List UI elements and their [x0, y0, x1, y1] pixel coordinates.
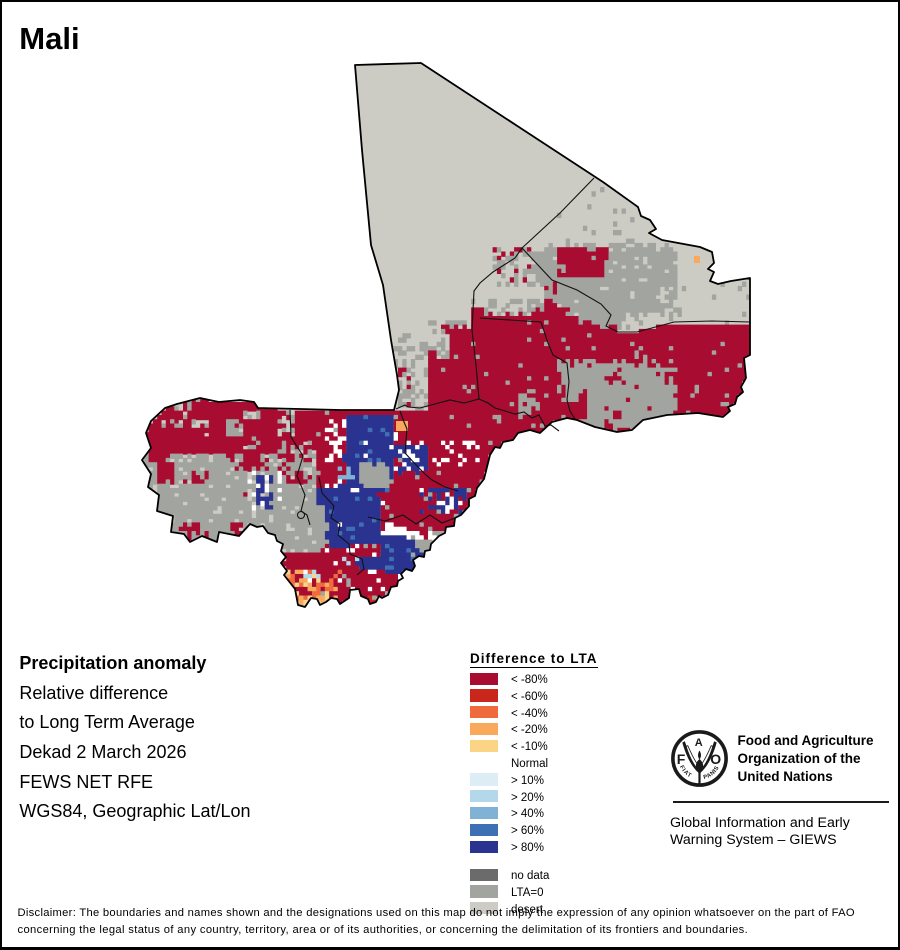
- svg-text:A: A: [695, 737, 703, 749]
- svg-text:F: F: [677, 751, 686, 767]
- svg-text:O: O: [710, 751, 721, 767]
